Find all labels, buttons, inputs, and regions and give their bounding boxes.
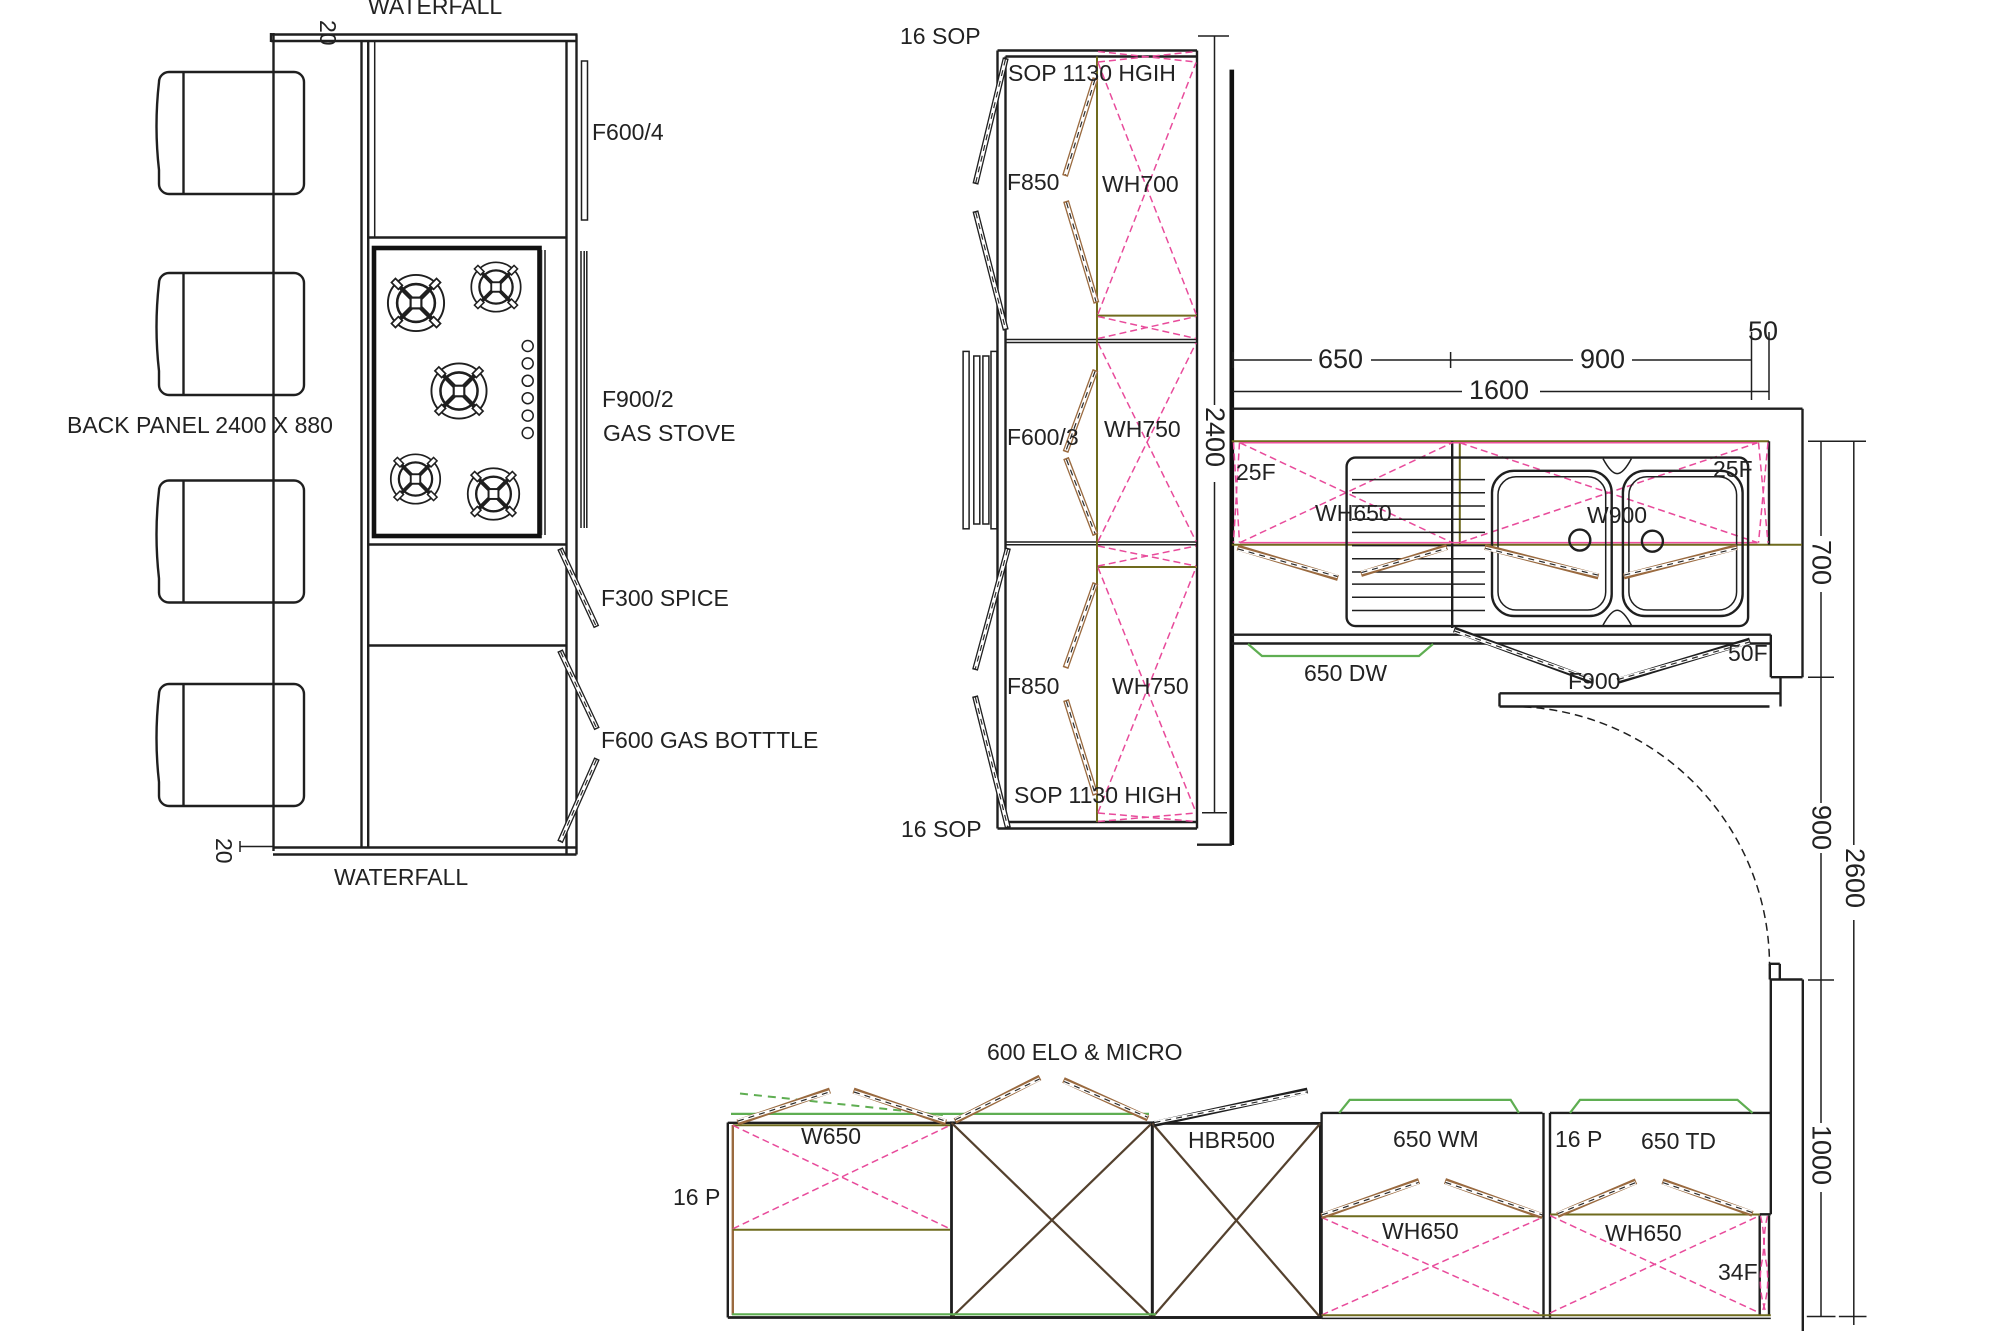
svg-text:F900: F900 [1568, 668, 1620, 694]
svg-text:W900: W900 [1587, 502, 1647, 528]
svg-text:WH650: WH650 [1382, 1218, 1459, 1244]
svg-text:25F: 25F [1713, 456, 1753, 482]
svg-text:WH750: WH750 [1112, 673, 1189, 699]
svg-text:BACK PANEL 2400 X 880: BACK PANEL 2400 X 880 [67, 412, 333, 438]
svg-text:16 SOP: 16 SOP [901, 816, 982, 842]
svg-text:F850: F850 [1007, 169, 1059, 195]
svg-text:50F: 50F [1728, 640, 1768, 666]
svg-text:34F: 34F [1718, 1259, 1758, 1285]
svg-text:16 P: 16 P [673, 1184, 720, 1210]
svg-text:1000: 1000 [1807, 1125, 1837, 1185]
svg-text:650 DW: 650 DW [1304, 660, 1387, 686]
svg-text:F850: F850 [1007, 673, 1059, 699]
svg-text:F600 GAS BOTTTLE: F600 GAS BOTTTLE [601, 727, 818, 753]
svg-text:WH700: WH700 [1102, 171, 1179, 197]
svg-text:600 ELO & MICRO: 600 ELO & MICRO [987, 1039, 1183, 1065]
svg-text:25F: 25F [1236, 459, 1276, 485]
svg-text:650 WM: 650 WM [1393, 1126, 1479, 1152]
svg-text:16 P: 16 P [1555, 1126, 1602, 1152]
svg-text:SOP 1130 HGIH: SOP 1130 HGIH [1008, 60, 1176, 86]
svg-text:F600/3: F600/3 [1007, 424, 1079, 450]
svg-text:20: 20 [211, 838, 237, 864]
svg-text:F600/4: F600/4 [592, 119, 664, 145]
svg-text:650: 650 [1318, 344, 1363, 374]
svg-text:2600: 2600 [1840, 848, 1870, 908]
svg-text:2400: 2400 [1200, 407, 1230, 467]
svg-text:WH750: WH750 [1104, 416, 1181, 442]
svg-text:WATERFALL: WATERFALL [334, 864, 468, 890]
svg-text:16 SOP: 16 SOP [900, 23, 981, 49]
svg-text:20: 20 [315, 20, 341, 46]
svg-text:F300 SPICE: F300 SPICE [601, 585, 729, 611]
svg-text:700: 700 [1807, 540, 1837, 585]
svg-text:HBR500: HBR500 [1188, 1127, 1275, 1153]
svg-text:900: 900 [1580, 344, 1625, 374]
svg-text:900: 900 [1807, 805, 1837, 850]
svg-text:SOP 1130 HIGH: SOP 1130 HIGH [1014, 782, 1182, 808]
svg-text:650 TD: 650 TD [1641, 1128, 1716, 1154]
svg-text:1600: 1600 [1469, 375, 1529, 405]
svg-text:WATERFALL: WATERFALL [368, 0, 502, 19]
svg-text:GAS STOVE: GAS STOVE [603, 420, 736, 446]
svg-text:F900/2: F900/2 [602, 386, 674, 412]
svg-text:WH650: WH650 [1605, 1220, 1682, 1246]
svg-text:W650: W650 [801, 1123, 861, 1149]
svg-text:50: 50 [1748, 316, 1778, 346]
svg-text:WH650: WH650 [1315, 500, 1392, 526]
